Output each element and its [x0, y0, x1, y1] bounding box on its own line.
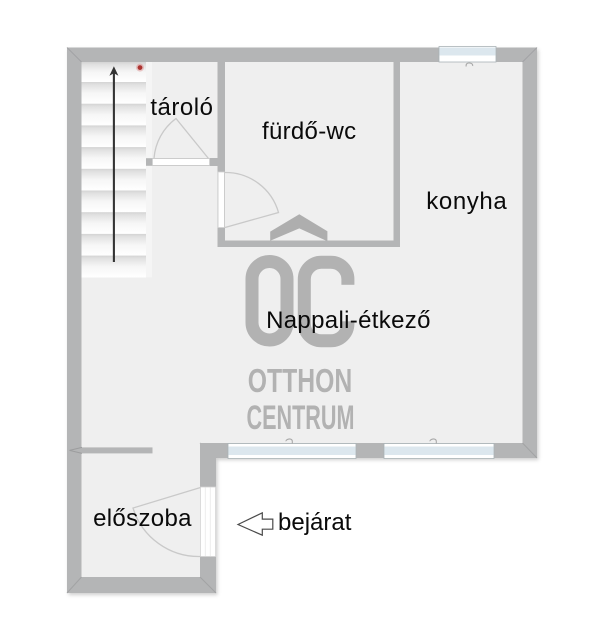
- svg-text:OTTHON: OTTHON: [248, 363, 353, 400]
- svg-text:CENTRUM: CENTRUM: [247, 399, 355, 437]
